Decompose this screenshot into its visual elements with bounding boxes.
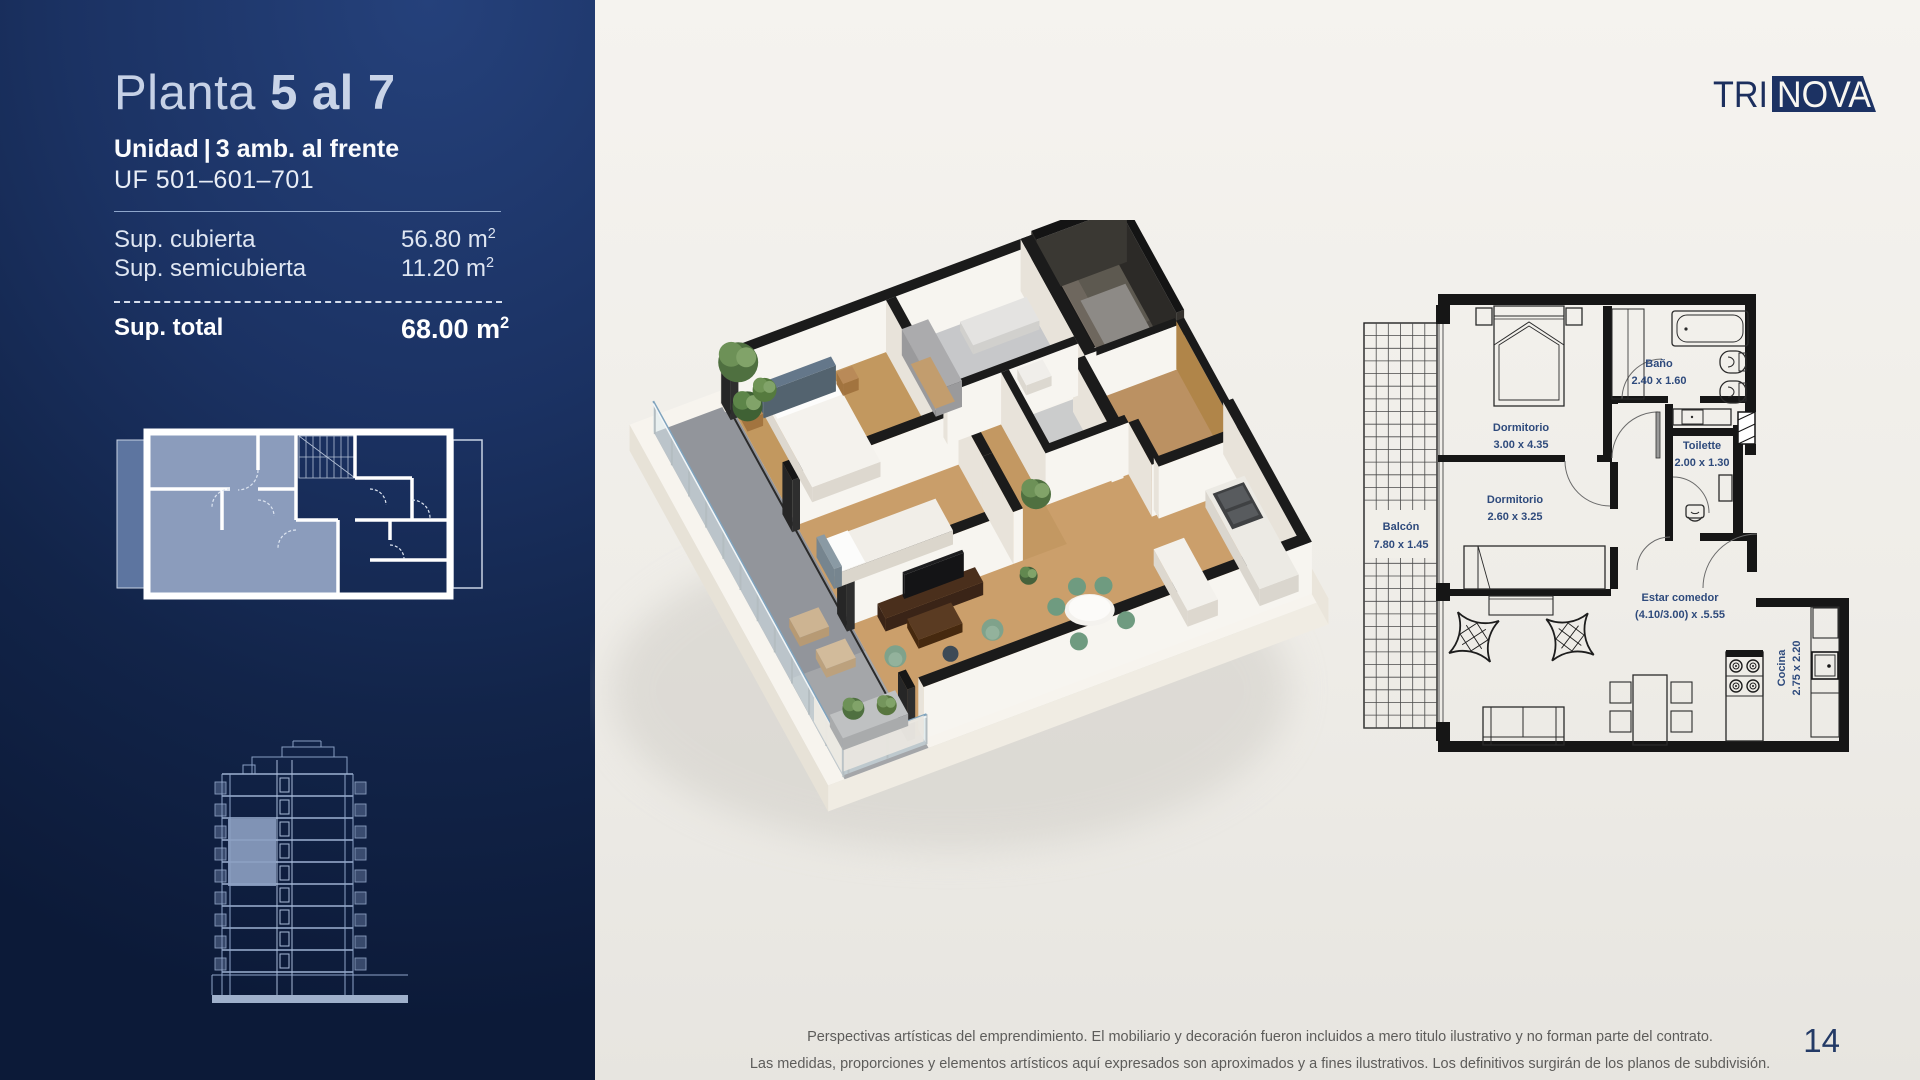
svg-text:2.40 x 1.60: 2.40 x 1.60 — [1631, 375, 1686, 387]
svg-text:7.80 x 1.45: 7.80 x 1.45 — [1373, 539, 1428, 551]
svg-text:(4.10/3.00) x .5.55: (4.10/3.00) x .5.55 — [1635, 609, 1725, 621]
svg-text:Baño: Baño — [1645, 358, 1673, 370]
svg-text:Dormitorio: Dormitorio — [1487, 494, 1544, 506]
svg-text:Dormitorio: Dormitorio — [1493, 422, 1550, 434]
svg-text:TRI: TRI — [1713, 76, 1768, 115]
svg-text:3.00 x 4.35: 3.00 x 4.35 — [1493, 439, 1548, 451]
svg-text:NOVA: NOVA — [1777, 76, 1871, 115]
svg-text:Cocina: Cocina — [1776, 649, 1788, 687]
svg-text:Estar comedor: Estar comedor — [1641, 592, 1719, 604]
svg-text:2.75 x 2.20: 2.75 x 2.20 — [1791, 640, 1803, 695]
svg-text:2.00 x 1.30: 2.00 x 1.30 — [1674, 457, 1729, 469]
svg-text:2.60 x 3.25: 2.60 x 3.25 — [1487, 511, 1542, 523]
svg-text:Toilette: Toilette — [1683, 440, 1721, 452]
svg-text:Balcón: Balcón — [1383, 521, 1420, 533]
